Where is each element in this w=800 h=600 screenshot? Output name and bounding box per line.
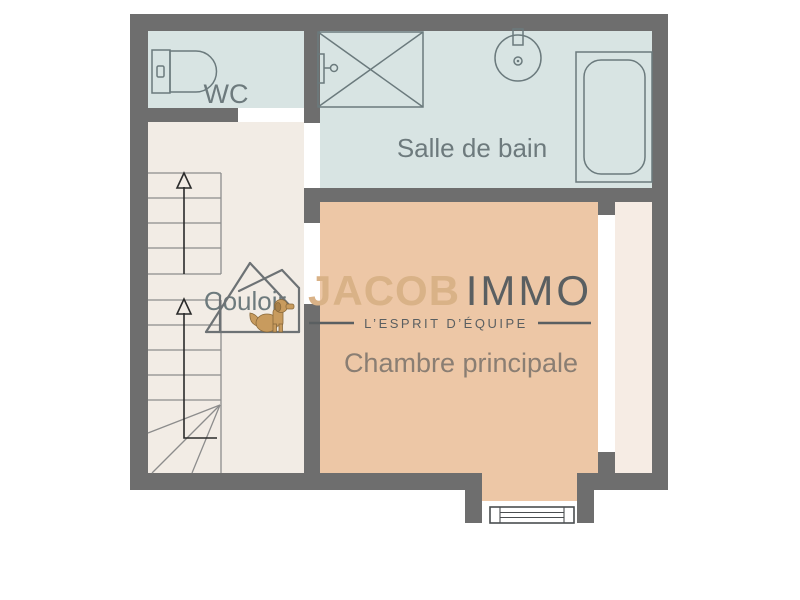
- wall-left: [130, 14, 148, 490]
- floor-plan: WC Salle de bain Couloir Chambre princip…: [0, 0, 800, 600]
- wall-wc-bottom: [148, 108, 238, 122]
- dog-ear: [275, 303, 281, 312]
- brand-primary-text: JACOB: [308, 267, 460, 314]
- window-icon: [490, 507, 574, 523]
- room-label-bathroom: Salle de bain: [397, 133, 547, 163]
- dog-leg: [273, 324, 277, 332]
- closet-stub-top: [598, 202, 615, 215]
- closet-strip: [615, 202, 652, 473]
- wall-top: [130, 14, 668, 31]
- wall-bottom-left: [130, 473, 482, 490]
- wall-mid-vertical-lower: [304, 304, 320, 473]
- bay-stub-left: [465, 473, 482, 523]
- wall-right: [652, 14, 668, 490]
- dog-muzzle: [286, 304, 294, 309]
- room-label-bedroom: Chambre principale: [344, 348, 578, 378]
- bay-stub-right: [577, 473, 594, 523]
- brand-tagline-text: L’ESPRIT D’ÉQUIPE: [364, 316, 528, 331]
- floor-plan-canvas: WC Salle de bain Couloir Chambre princip…: [0, 0, 800, 600]
- closet-stub-bottom: [598, 452, 615, 473]
- window-frame: [490, 507, 574, 523]
- dog-leg: [279, 324, 283, 332]
- wall-bathroom-bottom: [304, 188, 668, 202]
- bay-window-alcove: [482, 473, 577, 501]
- brand-secondary-text: IMMO: [466, 267, 592, 314]
- room-bedroom: [320, 202, 598, 473]
- sink-drain-dot: [517, 60, 520, 63]
- room-label-wc: WC: [204, 79, 249, 109]
- room-bathroom: [320, 31, 652, 188]
